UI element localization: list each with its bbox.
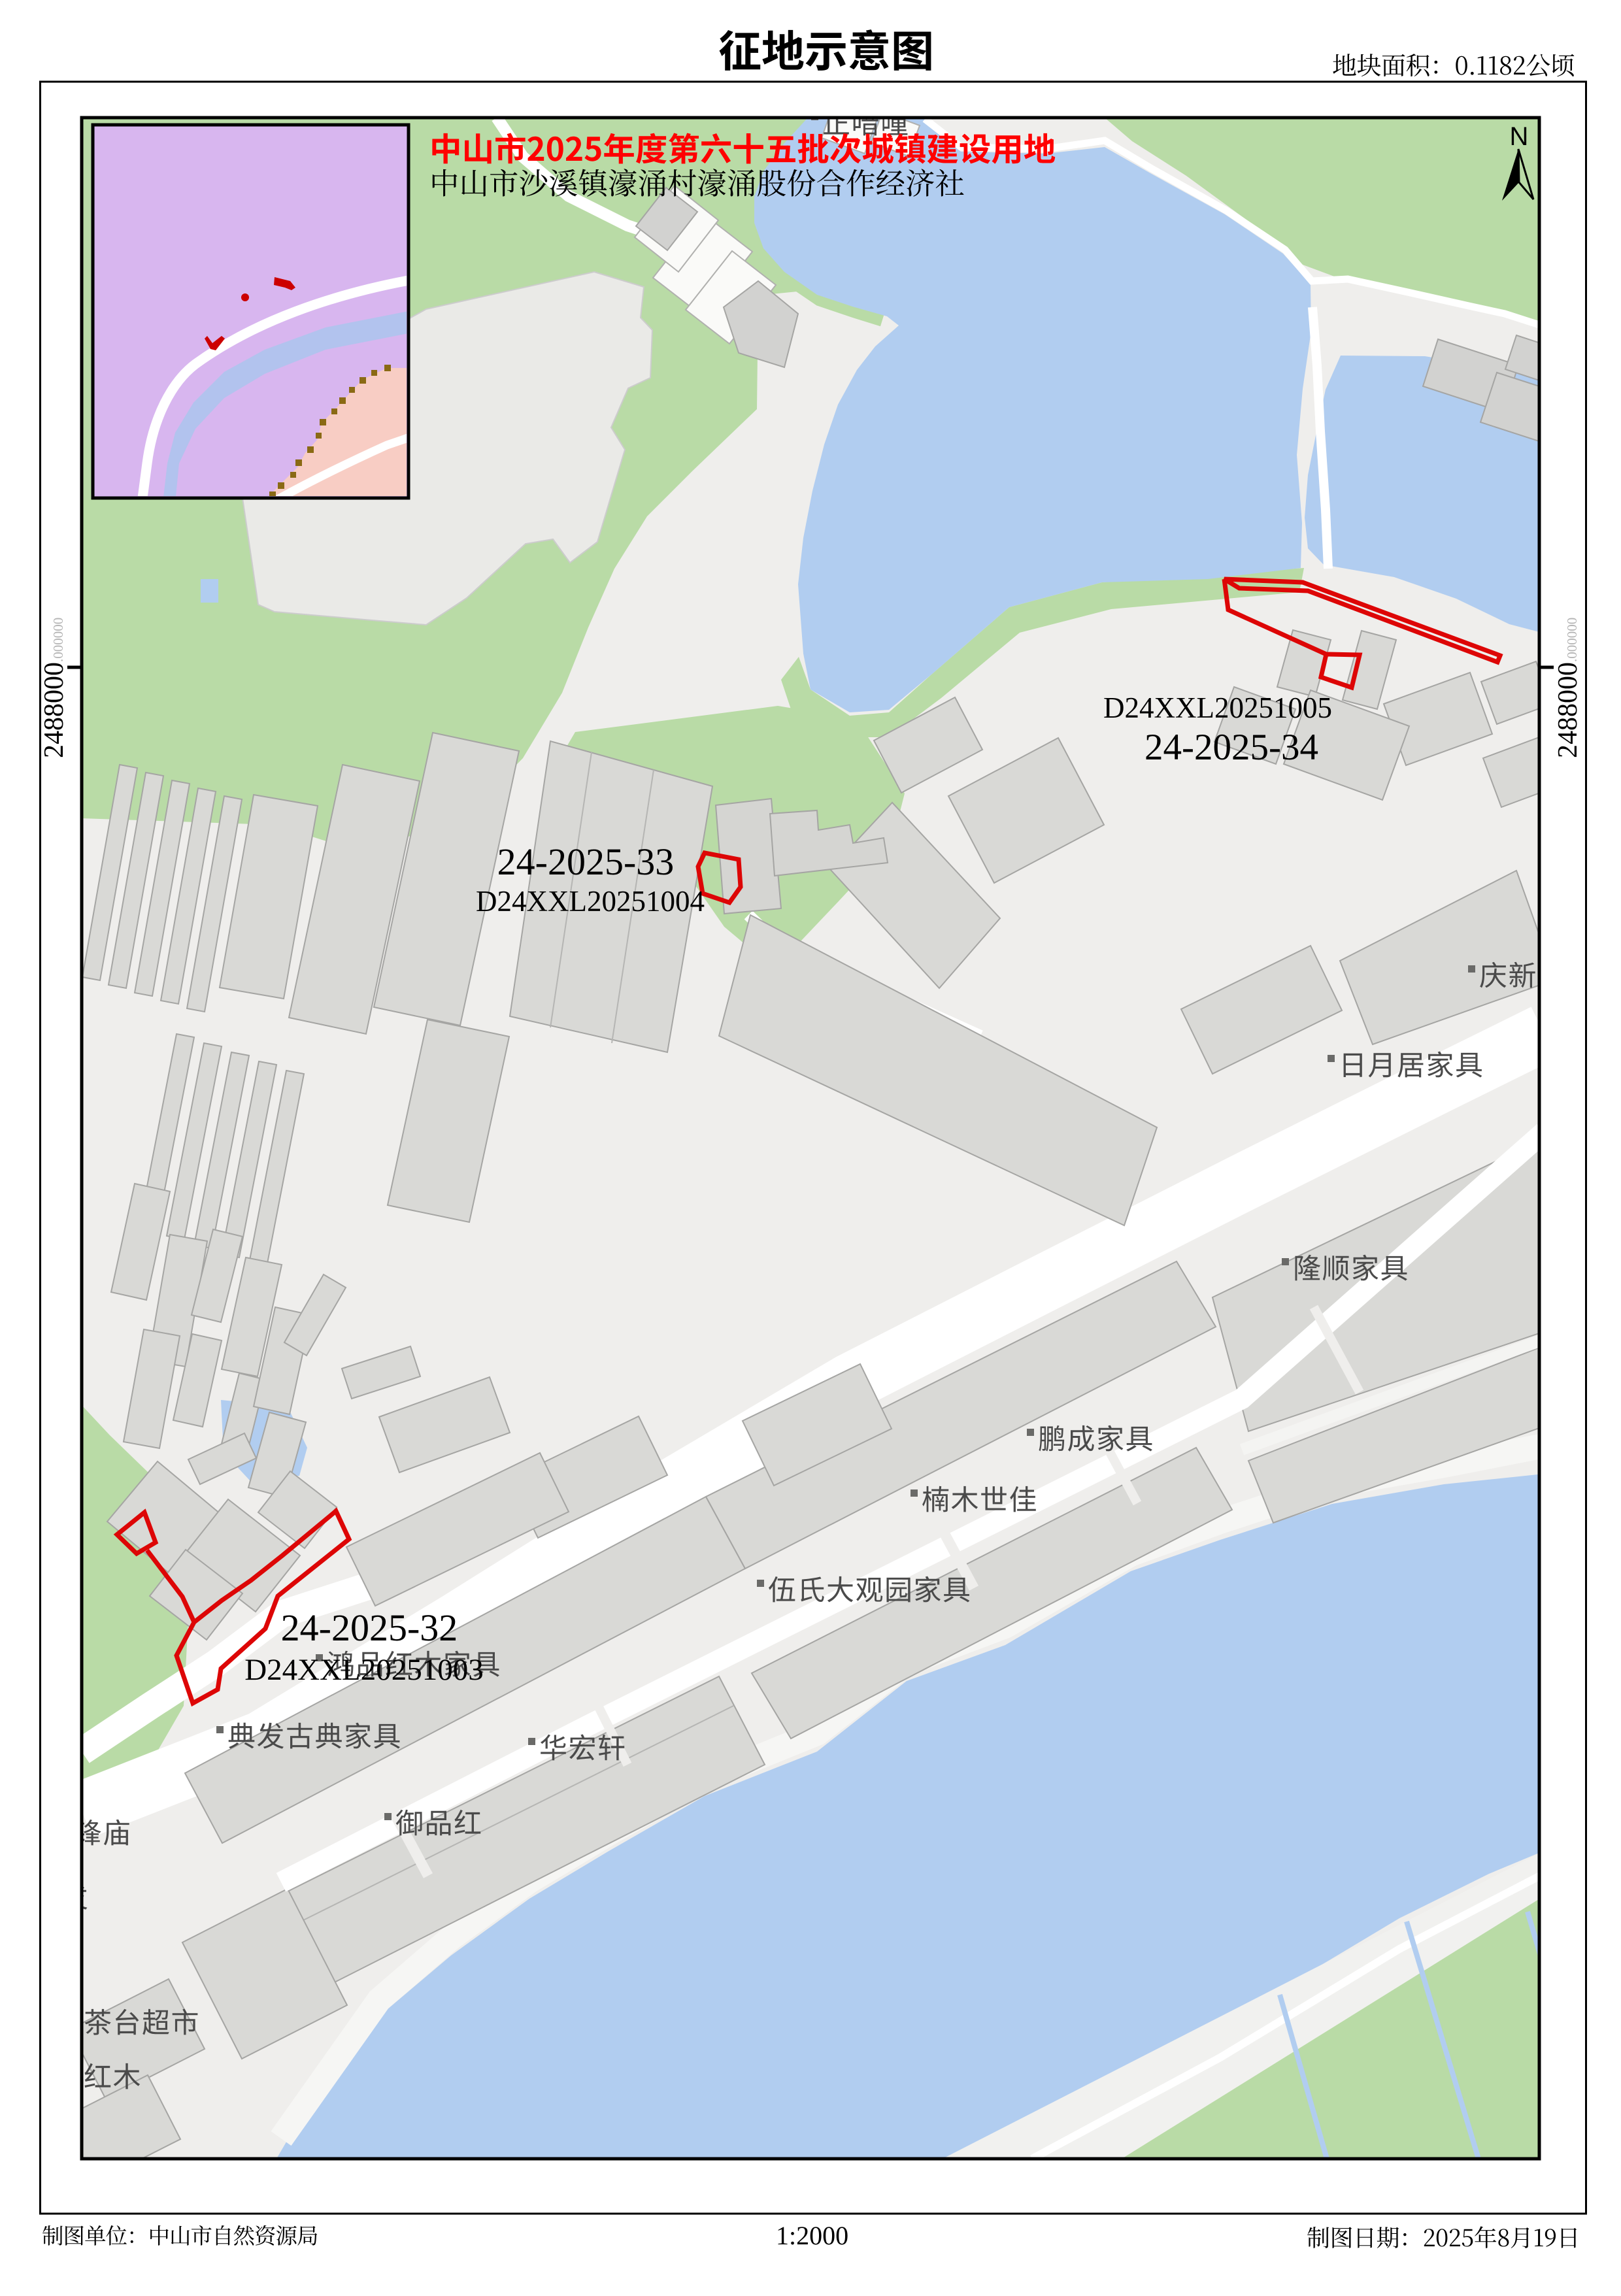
svg-text:D24XXL20251005: D24XXL20251005 xyxy=(1103,691,1332,724)
svg-text:24-2025-32: 24-2025-32 xyxy=(281,1606,458,1649)
svg-text:D24XXL20251004: D24XXL20251004 xyxy=(476,885,705,918)
svg-text:D24XXL20251003: D24XXL20251003 xyxy=(244,1653,484,1687)
svg-text:1:2000: 1:2000 xyxy=(776,2221,848,2250)
svg-text:N: N xyxy=(1510,122,1529,151)
svg-text:24-2025-34: 24-2025-34 xyxy=(1145,727,1318,768)
svg-text:24-2025-33: 24-2025-33 xyxy=(497,840,675,883)
